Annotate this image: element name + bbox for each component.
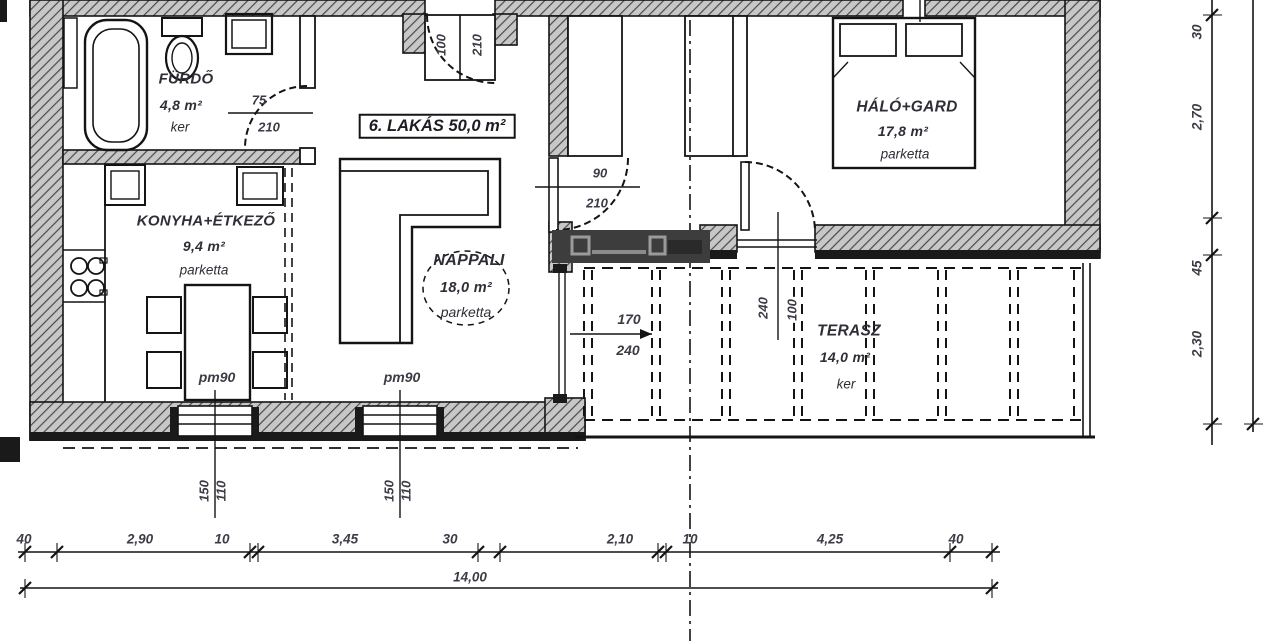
dim-bottom-8: 40 <box>948 532 963 546</box>
dim-bottom-1: 2,90 <box>127 532 153 546</box>
partitions-group <box>300 16 747 164</box>
room-name-furdo: FÜRDŐ <box>159 72 214 87</box>
room-floor-konyha: parketta <box>180 263 229 277</box>
dim-bottom-0: 40 <box>16 532 31 546</box>
window2-height: 150 <box>383 480 396 502</box>
dim-bottom-3: 3,45 <box>332 532 358 546</box>
floor-plan-page: 6. LAKÁS 50,0 m² FÜRDŐ 4,8 m² ker KONYHA… <box>0 0 1280 641</box>
window1-width: 110 <box>215 481 228 502</box>
room-floor-halo: parketta <box>881 147 930 161</box>
room-area-halo: 17,8 m² <box>878 124 928 138</box>
dim-right-0: 30 <box>1190 24 1204 39</box>
dim-bottom-6: 10 <box>682 532 697 546</box>
hall-door-width: 90 <box>593 167 607 180</box>
glass-wall-group <box>553 264 567 403</box>
room-name-konyha: KONYHA+ÉTKEZŐ <box>137 214 276 229</box>
dim-bottom-7: 4,25 <box>817 532 843 546</box>
dim-bottom-4: 30 <box>442 532 457 546</box>
dim-bottom-2: 10 <box>214 532 229 546</box>
hall-door-height: 210 <box>586 197 608 210</box>
room-floor-terasz: ker <box>837 377 856 391</box>
watermark <box>552 230 710 263</box>
terrace-door-width: 100 <box>786 297 799 323</box>
room-area-nappali: 18,0 m² <box>440 281 492 296</box>
room-name-halo: HÁLÓ+GARD <box>856 99 957 115</box>
unit-title: 6. LAKÁS 50,0 m² <box>359 114 516 139</box>
room-floor-furdo: ker <box>171 120 190 134</box>
entrance-door-height: 210 <box>471 34 484 56</box>
living-glass-width: 170 <box>615 312 642 326</box>
bathroom-door-width: 75 <box>252 94 266 107</box>
room-name-terasz: TERASZ <box>817 323 881 339</box>
bathroom-door-height: 210 <box>256 121 282 134</box>
terrace-door-height: 240 <box>757 295 770 321</box>
living-glass-height: 240 <box>614 343 641 357</box>
dim-bottom-total: 14,00 <box>453 570 487 584</box>
window1-height: 150 <box>198 480 211 502</box>
entrance-door-width: 100 <box>435 34 448 56</box>
window1-parapet: pm90 <box>197 370 238 384</box>
room-floor-nappali: parketta <box>441 305 492 319</box>
dim-right-2: 45 <box>1190 260 1204 275</box>
dim-right-1: 2,70 <box>1190 104 1204 130</box>
dim-right-3: 2,30 <box>1190 331 1204 357</box>
dim-bottom-5: 2,10 <box>607 532 633 546</box>
window2-width: 110 <box>400 481 413 502</box>
window2-parapet: pm90 <box>382 370 423 384</box>
kitchen-fixtures-group <box>63 165 287 402</box>
room-area-konyha: 9,4 m² <box>183 239 225 253</box>
room-name-nappali: NAPPALI <box>433 253 504 269</box>
room-area-terasz: 14,0 m² <box>820 350 870 364</box>
room-area-furdo: 4,8 m² <box>160 98 202 112</box>
